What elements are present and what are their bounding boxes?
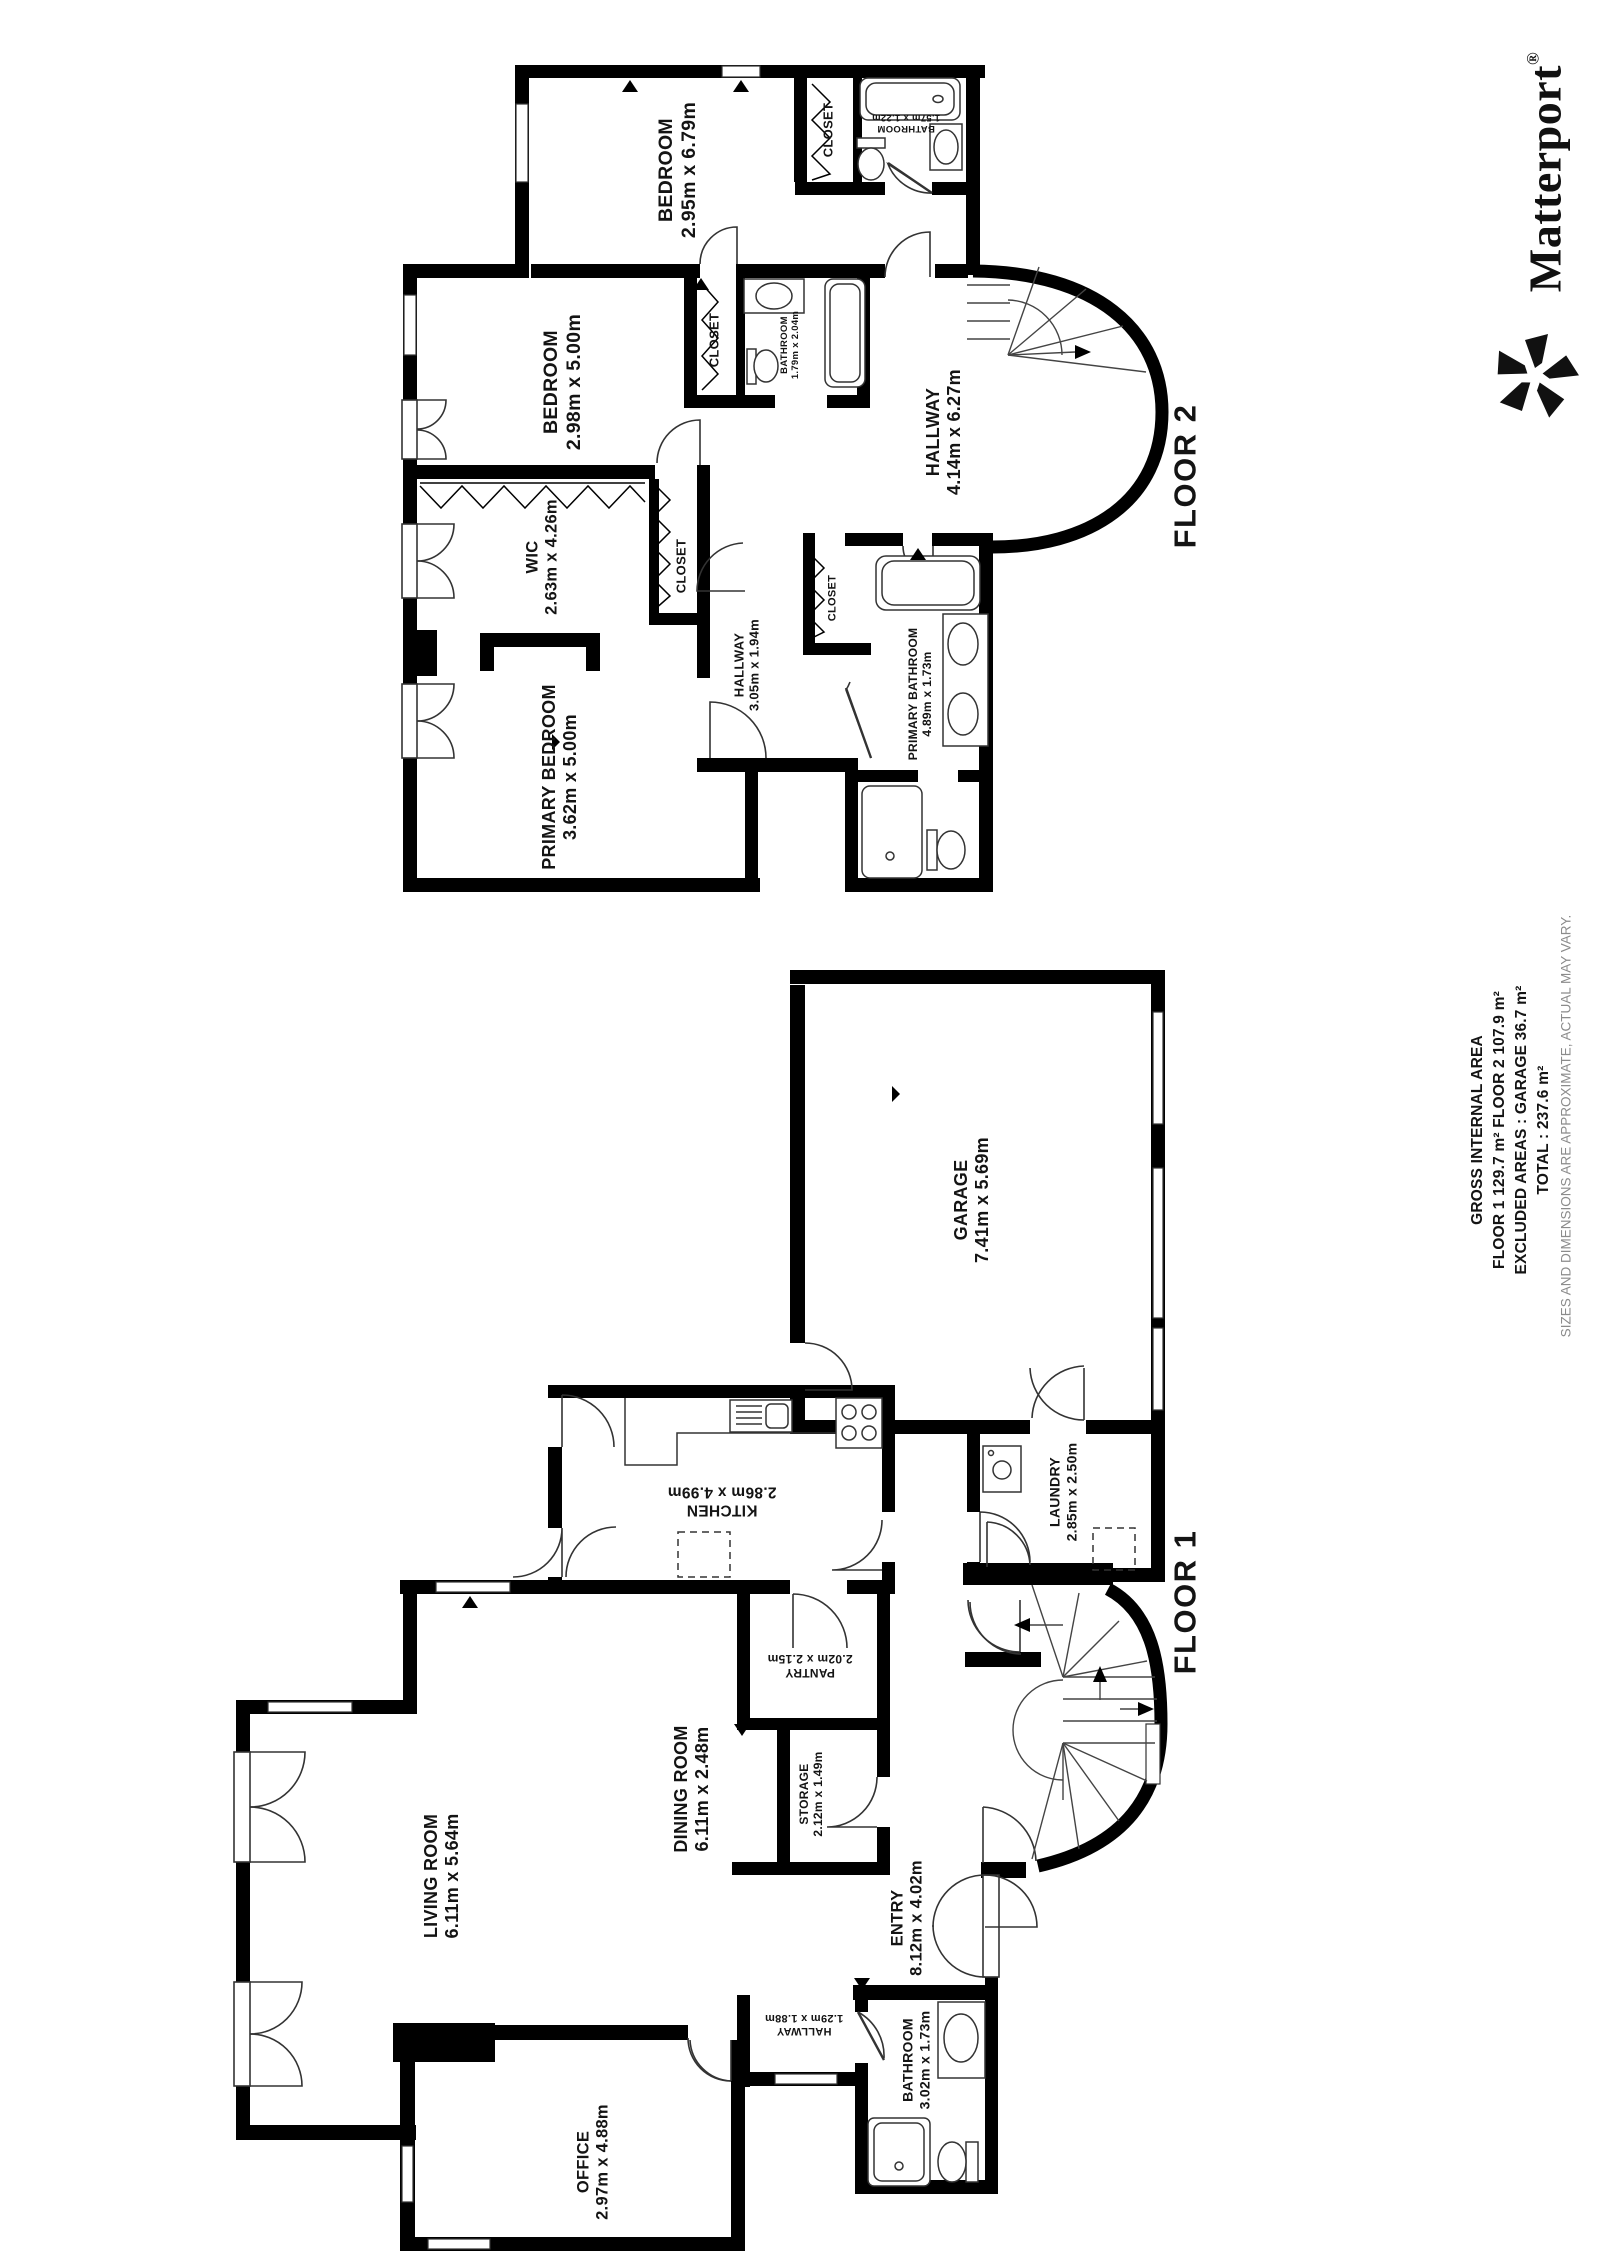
floor1-walls: [236, 970, 1165, 2251]
room-name: HALLWAY: [765, 2024, 844, 2037]
room-name: BATHROOM: [872, 123, 940, 134]
floor2-french-doors: [402, 400, 454, 758]
room-dims: 1.29m x 1.88m: [765, 2011, 844, 2024]
room-label-closet-top: CLOSET: [820, 103, 835, 158]
area-summary-total: TOTAL : 237.6 m²: [1533, 850, 1555, 1410]
room-dims: 3.05m x 1.94m: [747, 619, 762, 711]
room-label-laundry: LAUNDRY 2.85m x 2.50m: [1046, 1443, 1079, 1542]
room-name: OFFICE: [575, 2104, 594, 2220]
room-label-bathroom-mid: BATHROOM 1.79m x 2.04m: [779, 311, 801, 379]
room-label-primary-bedroom: PRIMARY BEDROOM 3.62m x 5.00m: [539, 684, 581, 870]
floor1-title: FLOOR 1: [1168, 1530, 1205, 1675]
room-name: GARAGE: [951, 1137, 972, 1263]
room-name: BEDROOM: [540, 314, 563, 450]
room-dims: 1.79m x 2.04m: [790, 311, 801, 379]
area-summary: GROSS INTERNAL AREA FLOOR 1 129.7 m² FLO…: [1467, 850, 1555, 1410]
room-dims: 2.63m x 4.26m: [543, 499, 562, 615]
area-summary-floors: FLOOR 1 129.7 m² FLOOR 2 107.9 m²: [1489, 850, 1511, 1410]
room-label-dining-room: DINING ROOM 6.11m x 2.48m: [671, 1725, 713, 1852]
room-name: CLOSET: [673, 539, 688, 594]
room-label-bedroom-b: BEDROOM 2.98m x 5.00m: [540, 314, 586, 450]
room-label-pantry: PANTRY 2.02m x 2.15m: [767, 1652, 852, 1680]
room-label-closet-bath: CLOSET: [827, 575, 840, 621]
room-label-closet-mid: CLOSET: [706, 313, 721, 368]
room-name: HALLWAY: [923, 369, 944, 495]
room-label-hallway-f1: HALLWAY 1.29m x 1.88m: [765, 2011, 844, 2037]
room-dims: 2.85m x 2.50m: [1063, 1443, 1080, 1542]
room-name: PRIMARY BEDROOM: [539, 684, 560, 870]
room-name: CLOSET: [820, 103, 835, 158]
floor1-stairs-arrow-right: [1138, 1702, 1154, 1716]
front-door: [933, 1875, 1037, 1977]
room-label-closet-wic: CLOSET: [673, 539, 688, 594]
room-name: DINING ROOM: [671, 1725, 692, 1852]
floor2-title: FLOOR 2: [1168, 404, 1205, 549]
room-dims: 6.11m x 2.48m: [692, 1725, 713, 1852]
room-name: CLOSET: [827, 575, 840, 621]
room-dims: 7.41m x 5.69m: [972, 1137, 993, 1263]
room-label-entry: ENTRY 8.12m x 4.02m: [889, 1860, 928, 1976]
room-label-hallway-small: HALLWAY 3.05m x 1.94m: [732, 619, 763, 711]
room-name: PRIMARY BATHROOM: [906, 628, 920, 761]
room-name: BATHROOM: [899, 2011, 916, 2110]
matterport-logo-text: Matterport®: [1519, 52, 1572, 292]
room-dims: 2.12m x 1.49m: [811, 1751, 825, 1836]
room-dims: 1.57m x 1.22m: [872, 112, 940, 123]
area-disclaimer: SIZES AND DIMENSIONS ARE APPROXIMATE, AC…: [1559, 816, 1574, 1436]
floorplan-page: BEDROOM 2.95m x 6.79m BEDROOM 2.98m x 5.…: [0, 0, 1600, 2263]
floor2-bathroom-mid-fixtures: [744, 279, 865, 387]
floor2-stair-curved-wall: [973, 271, 1162, 547]
room-name: PANTRY: [767, 1666, 852, 1680]
room-name: ENTRY: [889, 1860, 908, 1976]
floor2-stairs-arrow: [1075, 345, 1091, 359]
room-dims: 6.11m x 5.64m: [442, 1814, 463, 1939]
room-name: LIVING ROOM: [421, 1814, 442, 1939]
room-name: CLOSET: [706, 313, 721, 368]
room-label-hallway-f2: HALLWAY 4.14m x 6.27m: [923, 369, 965, 495]
room-label-storage: STORAGE 2.12m x 1.49m: [797, 1751, 825, 1836]
area-summary-excluded: EXCLUDED AREAS : GARAGE 36.7 m²: [1511, 850, 1533, 1410]
floor2-windows: [404, 66, 760, 355]
room-label-living-room: LIVING ROOM 6.11m x 5.64m: [421, 1814, 463, 1939]
room-label-bathroom-top: BATHROOM 1.57m x 1.22m: [872, 112, 940, 134]
room-label-primary-bathroom: PRIMARY BATHROOM 4.89m x 1.73m: [906, 628, 934, 761]
room-dims: 4.14m x 6.27m: [944, 369, 965, 495]
room-dims: 2.97m x 4.88m: [594, 2104, 613, 2220]
room-dims: 2.02m x 2.15m: [767, 1652, 852, 1666]
room-dims: 2.86m x 4.99m: [667, 1482, 776, 1500]
room-dims: 3.62m x 5.00m: [560, 684, 581, 870]
room-label-bathroom-f1: BATHROOM 3.02m x 1.73m: [899, 2011, 932, 2110]
room-dims: 3.02m x 1.73m: [916, 2011, 933, 2110]
room-dims: 8.12m x 4.02m: [908, 1860, 927, 1976]
room-name: STORAGE: [797, 1751, 811, 1836]
floor1-stairs-arrow-left: [1014, 1618, 1030, 1632]
room-dims: 2.98m x 5.00m: [563, 314, 586, 450]
room-name: KITCHEN: [667, 1500, 776, 1518]
floor1-stair-curved-wall: [1038, 1589, 1161, 1866]
room-dims: 2.95m x 6.79m: [678, 102, 701, 238]
room-label-bedroom-a: BEDROOM 2.95m x 6.79m: [655, 102, 701, 238]
room-name: BEDROOM: [655, 102, 678, 238]
room-name: LAUNDRY: [1046, 1443, 1063, 1542]
registered-trademark: ®: [1524, 52, 1543, 65]
room-label-kitchen: KITCHEN 2.86m x 4.99m: [667, 1482, 776, 1519]
area-summary-title: GROSS INTERNAL AREA: [1467, 850, 1489, 1410]
room-label-garage: GARAGE 7.41m x 5.69m: [951, 1137, 993, 1263]
room-name: BATHROOM: [779, 311, 790, 379]
room-dims: 4.89m x 1.73m: [920, 628, 934, 761]
room-label-wic: WIC 2.63m x 4.26m: [524, 499, 563, 615]
matterport-logo-icon: [1490, 328, 1580, 424]
room-name: WIC: [524, 499, 543, 615]
room-name: HALLWAY: [732, 619, 747, 711]
room-label-office: OFFICE 2.97m x 4.88m: [575, 2104, 614, 2220]
